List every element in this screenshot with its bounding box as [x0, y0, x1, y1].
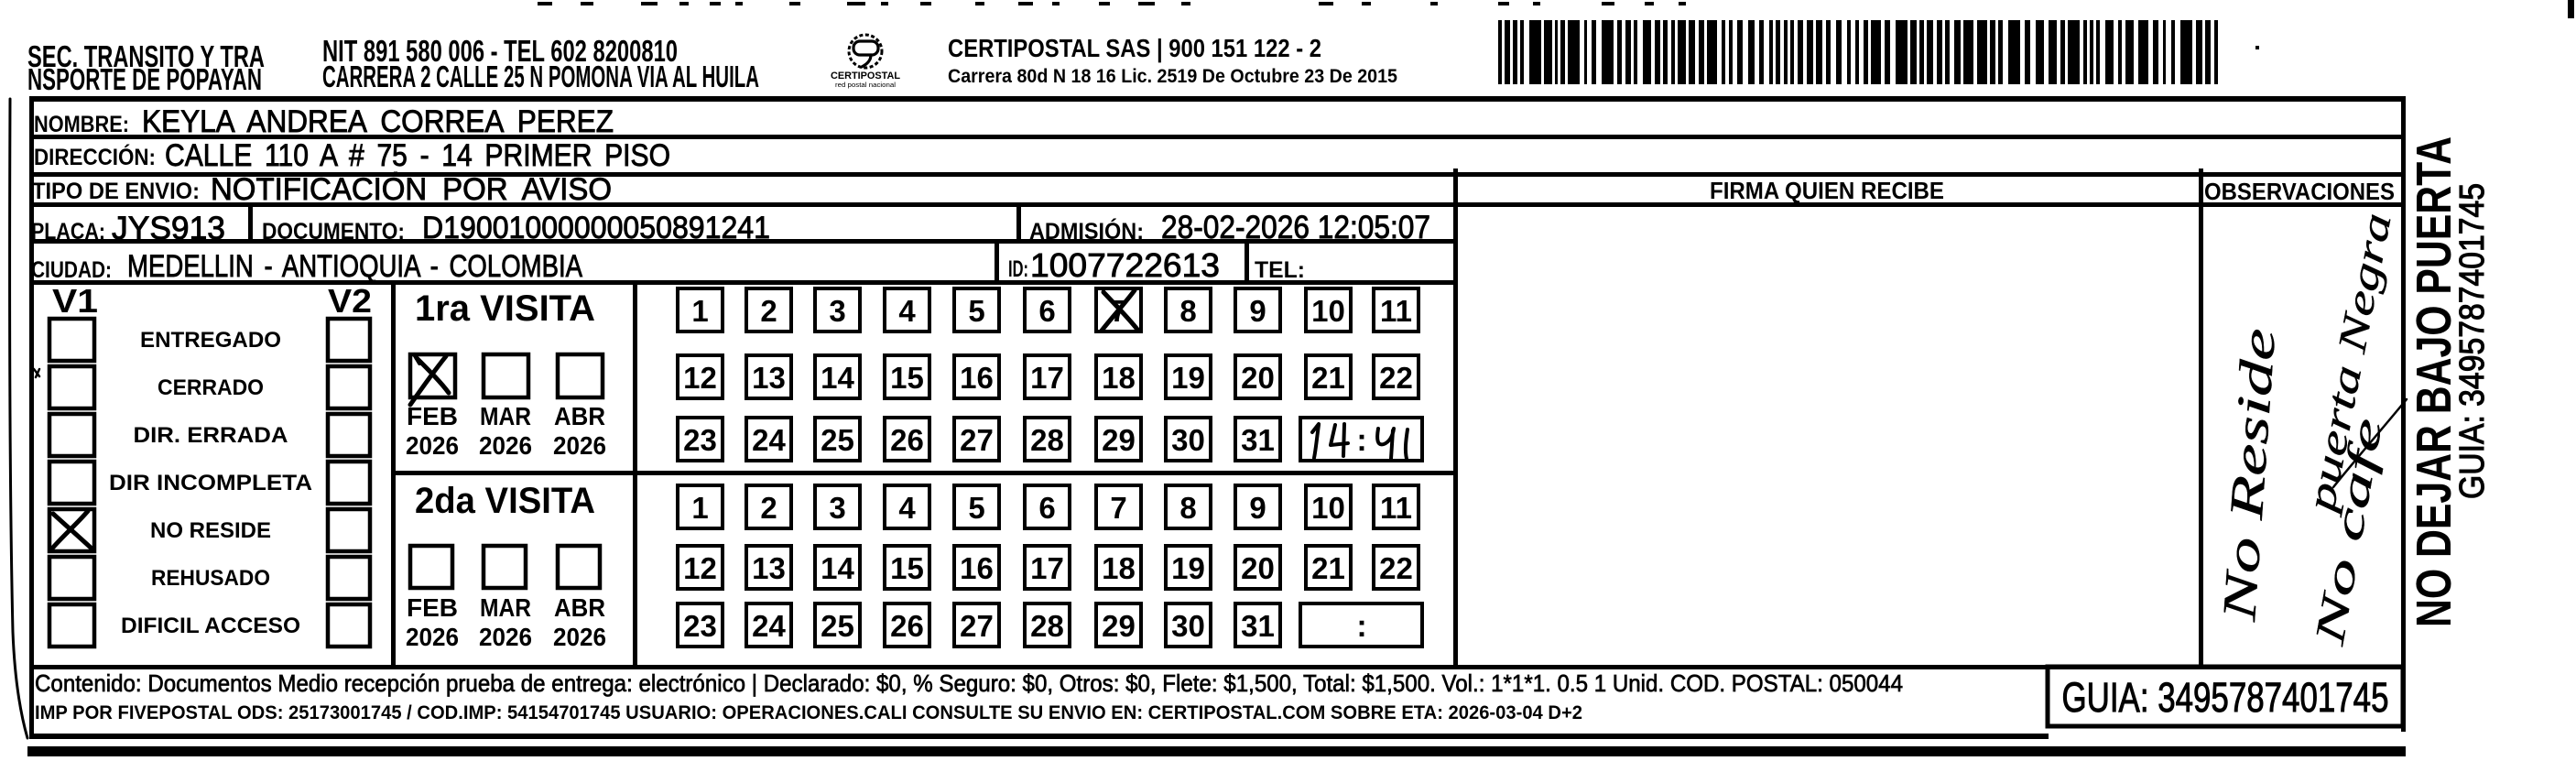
svg-text:3: 3	[829, 294, 845, 328]
svg-text:26: 26	[890, 609, 924, 643]
svg-text:MEDELLIN - ANTIOQUIA - COLOMBI: MEDELLIN - ANTIOQUIA - COLOMBIA	[127, 249, 582, 284]
svg-text:21: 21	[1311, 361, 1345, 395]
svg-text:28: 28	[1030, 609, 1064, 643]
svg-text:CARRERA 2 CALLE 25 N POMONA VI: CARRERA 2 CALLE 25 N POMONA VIA AL HUILA	[322, 60, 759, 93]
svg-text:25: 25	[821, 609, 854, 643]
svg-text:27: 27	[960, 423, 994, 457]
svg-text:27: 27	[960, 609, 994, 643]
svg-text:29: 29	[1102, 609, 1136, 643]
svg-text:30: 30	[1171, 609, 1205, 643]
svg-text:1: 1	[691, 491, 708, 525]
svg-text:6: 6	[1038, 491, 1055, 525]
svg-text:15: 15	[890, 361, 924, 395]
svg-text:28: 28	[1030, 423, 1064, 457]
svg-text:TEL:: TEL:	[1255, 257, 1305, 283]
svg-text:GUIA: 3495787401745: GUIA: 3495787401745	[2062, 674, 2389, 721]
svg-text:DIFICIL ACCESO: DIFICIL ACCESO	[121, 614, 300, 638]
svg-text:CERTIPOSTAL SAS | 900 151 122: CERTIPOSTAL SAS | 900 151 122 - 2	[948, 34, 1321, 62]
svg-text:REHUSADO: REHUSADO	[151, 566, 270, 591]
svg-text:KEYLA ANDREA CORREA PEREZ: KEYLA ANDREA CORREA PEREZ	[142, 104, 614, 139]
svg-text:5: 5	[968, 294, 984, 328]
svg-text:FEB: FEB	[407, 402, 458, 430]
svg-text:2026: 2026	[479, 431, 532, 460]
svg-text:24: 24	[752, 423, 786, 457]
svg-text:23: 23	[683, 609, 717, 643]
svg-text:28-02-2026 12:05:07: 28-02-2026 12:05:07	[1161, 210, 1430, 245]
svg-text:25: 25	[821, 423, 854, 457]
svg-text:9: 9	[1249, 491, 1266, 525]
svg-text:FIRMA QUIEN RECIBE: FIRMA QUIEN RECIBE	[1710, 177, 1944, 204]
svg-text:FEB: FEB	[407, 593, 458, 622]
svg-text:2: 2	[760, 491, 777, 525]
svg-text:2026: 2026	[406, 431, 459, 460]
svg-text:2: 2	[760, 294, 777, 328]
svg-text:2026: 2026	[553, 623, 606, 651]
svg-text:2026: 2026	[479, 623, 532, 651]
svg-text:1: 1	[691, 294, 708, 328]
svg-text:2026: 2026	[406, 623, 459, 651]
svg-text:3: 3	[829, 491, 845, 525]
svg-text:12: 12	[683, 361, 717, 395]
svg-text:19: 19	[1171, 361, 1205, 395]
svg-text:16: 16	[960, 551, 994, 585]
svg-text:30: 30	[1171, 423, 1205, 457]
svg-text:18: 18	[1102, 551, 1136, 585]
svg-text:OBSERVACIONES: OBSERVACIONES	[2204, 178, 2395, 205]
svg-text:GUIA: 3495787401745: GUIA: 3495787401745	[2453, 183, 2492, 499]
svg-text:10: 10	[1311, 491, 1345, 525]
svg-text:ADMISIÓN:: ADMISIÓN:	[1029, 217, 1144, 245]
svg-text:1007722613: 1007722613	[1030, 246, 1220, 284]
svg-text:DIRECCIÓN:: DIRECCIÓN:	[34, 143, 156, 170]
svg-text:MAR: MAR	[480, 402, 531, 430]
svg-text:24: 24	[752, 609, 786, 643]
svg-text:14: 14	[821, 361, 854, 395]
svg-text:Contenido: Documentos Medio re: Contenido: Documentos Medio recepción pr…	[35, 669, 1903, 697]
svg-text:4: 4	[898, 491, 916, 525]
svg-text:13: 13	[752, 361, 786, 395]
svg-text:20: 20	[1241, 551, 1275, 585]
svg-text:2026: 2026	[553, 431, 606, 460]
svg-text:31: 31	[1241, 609, 1275, 643]
svg-text:21: 21	[1311, 551, 1345, 585]
svg-text:DIR. ERRADA: DIR. ERRADA	[134, 423, 288, 448]
svg-text:22: 22	[1379, 361, 1413, 395]
svg-text:red postal nacional: red postal nacional	[835, 82, 896, 89]
svg-text:CALLE 110 A # 75 - 14 PRIMER P: CALLE 110 A # 75 - 14 PRIMER PISO	[165, 138, 670, 173]
svg-text:CERTIPOSTAL: CERTIPOSTAL	[831, 71, 900, 82]
svg-text:ID:: ID:	[1008, 256, 1028, 282]
svg-text:PLACA:: PLACA:	[31, 219, 105, 245]
svg-text:19: 19	[1171, 551, 1205, 585]
svg-text:20: 20	[1241, 361, 1275, 395]
svg-text:Carrera 80d N 18 16 Lic. 2519: Carrera 80d N 18 16 Lic. 2519 De Octubre…	[948, 66, 1397, 87]
svg-text:JYS913: JYS913	[112, 211, 225, 246]
svg-text:ABR: ABR	[554, 593, 605, 622]
svg-text:17: 17	[1030, 361, 1064, 395]
svg-text:13: 13	[752, 551, 786, 585]
svg-text:DOCUMENTO:: DOCUMENTO:	[262, 219, 405, 245]
svg-text:ENTREGADO: ENTREGADO	[140, 328, 281, 353]
svg-text:9: 9	[1249, 294, 1266, 328]
svg-text:31: 31	[1241, 423, 1275, 457]
svg-text:D19001000000050891241: D19001000000050891241	[422, 211, 770, 245]
svg-text:IMP POR FIVEPOSTAL ODS: 251730: IMP POR FIVEPOSTAL ODS: 25173001745 / CO…	[35, 702, 1582, 723]
svg-text:NOTIFICACIÓN POR AVISO: NOTIFICACIÓN POR AVISO	[211, 172, 612, 207]
svg-text:2da VISITA: 2da VISITA	[415, 481, 595, 521]
svg-text:1ra VISITA: 1ra VISITA	[415, 288, 595, 329]
svg-text:16: 16	[960, 361, 994, 395]
svg-text:5: 5	[968, 491, 984, 525]
svg-text:14: 14	[821, 551, 854, 585]
svg-text:17: 17	[1030, 551, 1064, 585]
svg-text:4: 4	[898, 294, 916, 328]
svg-text:11: 11	[1380, 294, 1412, 328]
svg-text:NSPORTE DE POPAYAN: NSPORTE DE POPAYAN	[27, 62, 262, 96]
svg-text:12: 12	[683, 551, 717, 585]
svg-text:V2: V2	[328, 282, 372, 320]
svg-text:10: 10	[1311, 294, 1345, 328]
svg-text:TIPO DE ENVIO:: TIPO DE ENVIO:	[32, 179, 200, 204]
svg-text:NO RESIDE: NO RESIDE	[150, 518, 271, 543]
svg-text:6: 6	[1038, 294, 1055, 328]
svg-text:11: 11	[1380, 491, 1412, 525]
svg-text::: :	[1356, 423, 1366, 458]
svg-text:MAR: MAR	[480, 593, 531, 622]
svg-text:CERRADO: CERRADO	[158, 375, 264, 400]
svg-text:29: 29	[1102, 423, 1136, 457]
svg-text:18: 18	[1102, 361, 1136, 395]
svg-text:8: 8	[1179, 491, 1196, 525]
svg-text:NOMBRE:: NOMBRE:	[34, 112, 129, 137]
svg-text:26: 26	[890, 423, 924, 457]
svg-text::: :	[1356, 609, 1366, 644]
svg-text:V1: V1	[52, 282, 98, 320]
svg-text:CIUDAD:: CIUDAD:	[31, 257, 112, 283]
svg-text:DIR INCOMPLETA: DIR INCOMPLETA	[109, 471, 312, 495]
svg-text:8: 8	[1179, 294, 1196, 328]
svg-text:15: 15	[890, 551, 924, 585]
svg-text:7: 7	[1110, 491, 1126, 525]
svg-text:ABR: ABR	[554, 402, 605, 430]
svg-text:23: 23	[683, 423, 717, 457]
svg-text:22: 22	[1379, 551, 1413, 585]
